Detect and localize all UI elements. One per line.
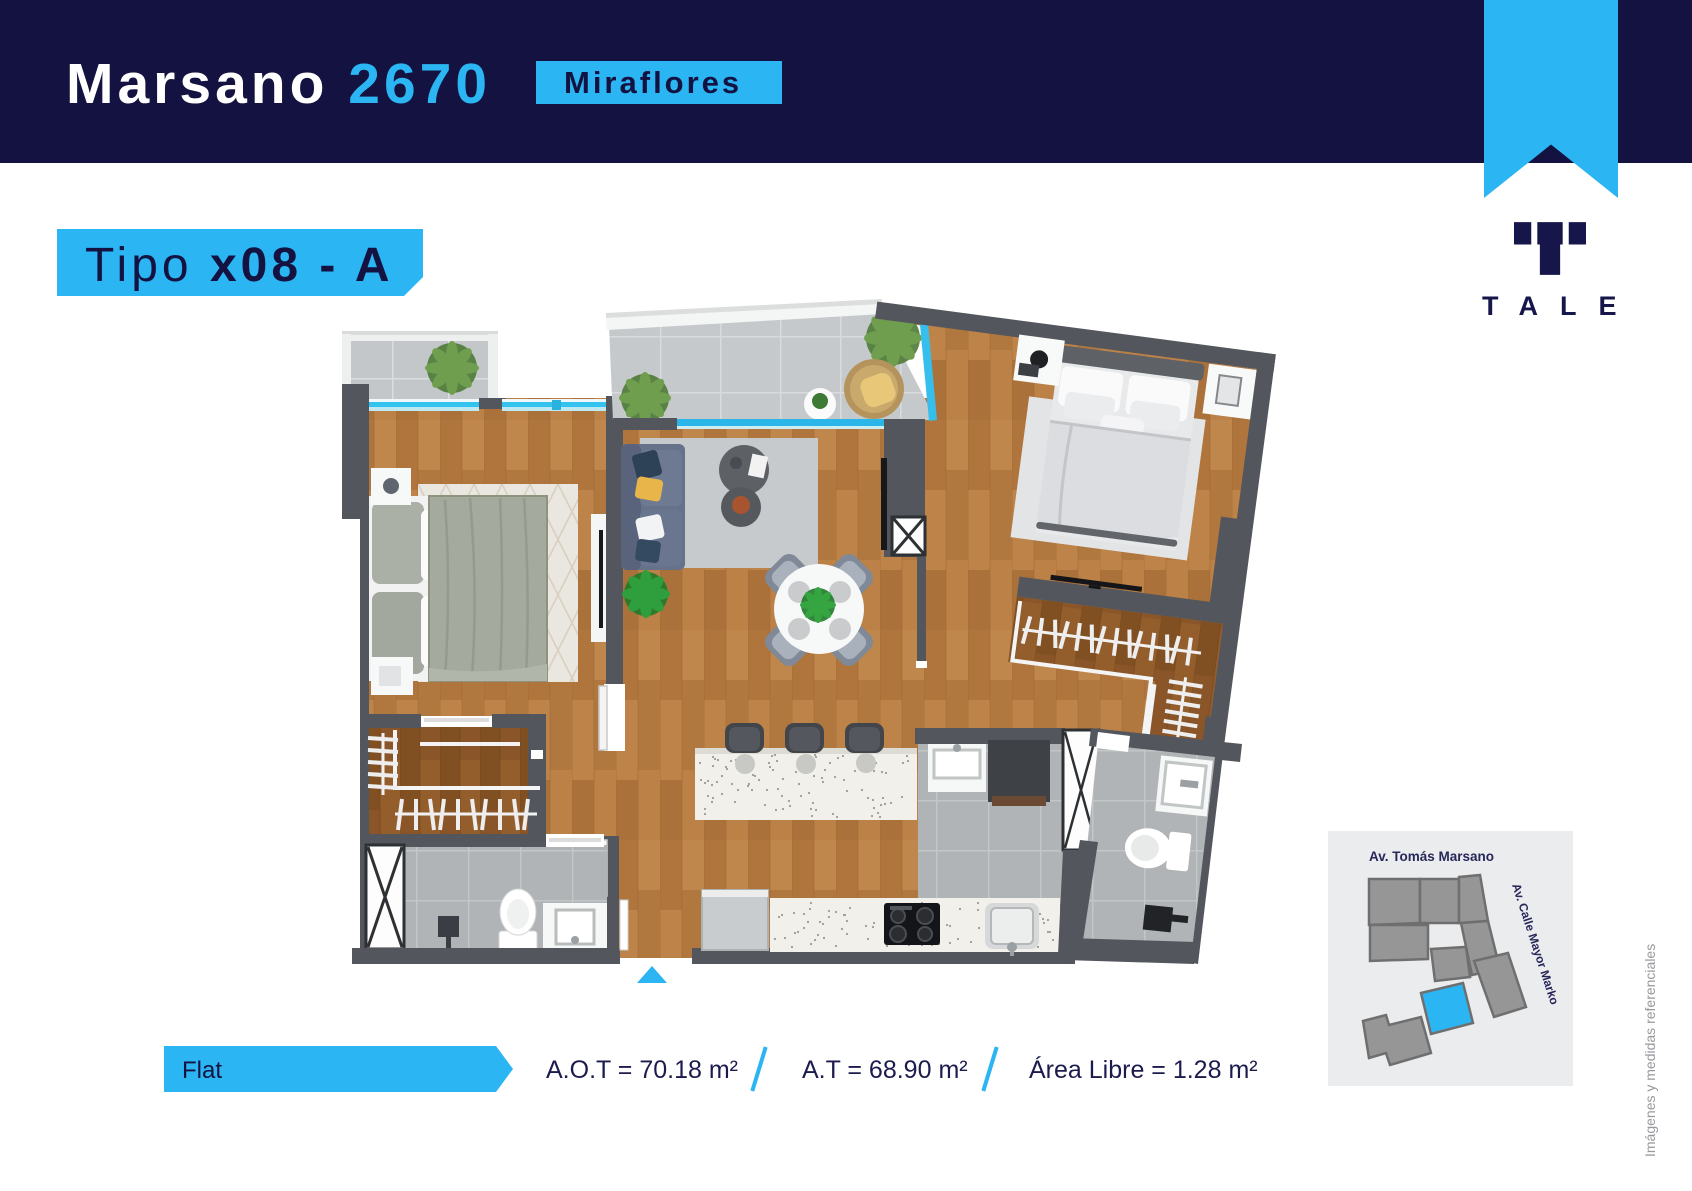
svg-text:Av. Tomás Marsano: Av. Tomás Marsano [1369, 849, 1494, 864]
